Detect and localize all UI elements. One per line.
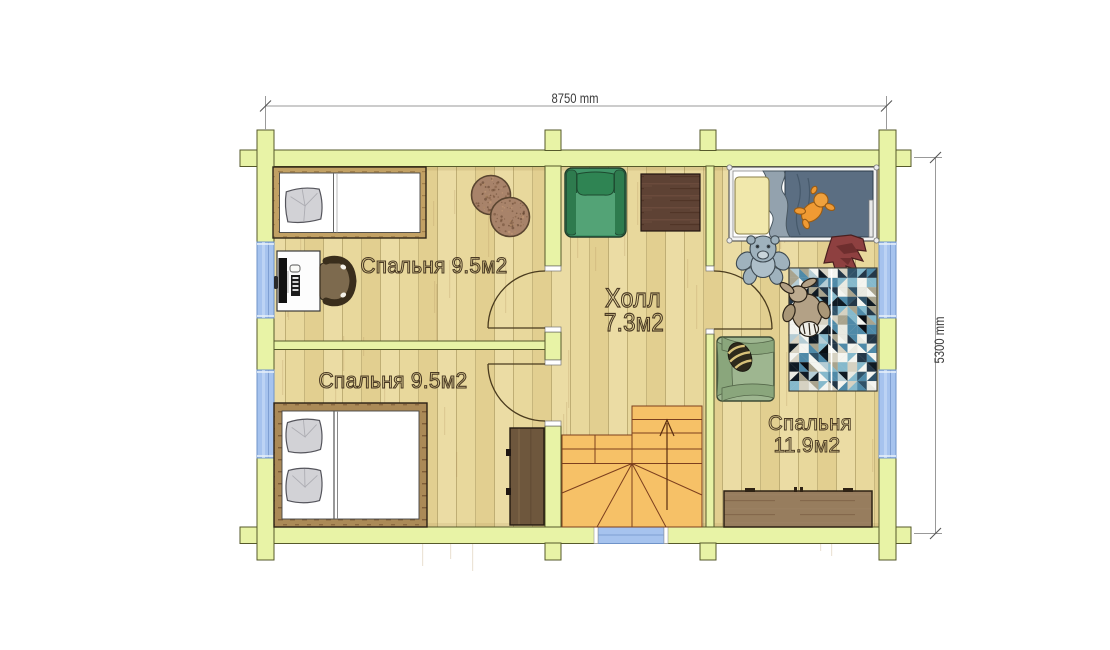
svg-text:Спальня: Спальня — [768, 412, 852, 435]
svg-text:Спальня 9.5м2: Спальня 9.5м2 — [319, 368, 468, 393]
svg-text:11.9м2: 11.9м2 — [774, 434, 841, 457]
svg-text:5300 mm: 5300 mm — [931, 317, 947, 364]
svg-text:Спальня 9.5м2: Спальня 9.5м2 — [361, 253, 508, 278]
svg-text:8750 mm: 8750 mm — [552, 90, 599, 106]
svg-text:7.3м2: 7.3м2 — [604, 309, 664, 337]
